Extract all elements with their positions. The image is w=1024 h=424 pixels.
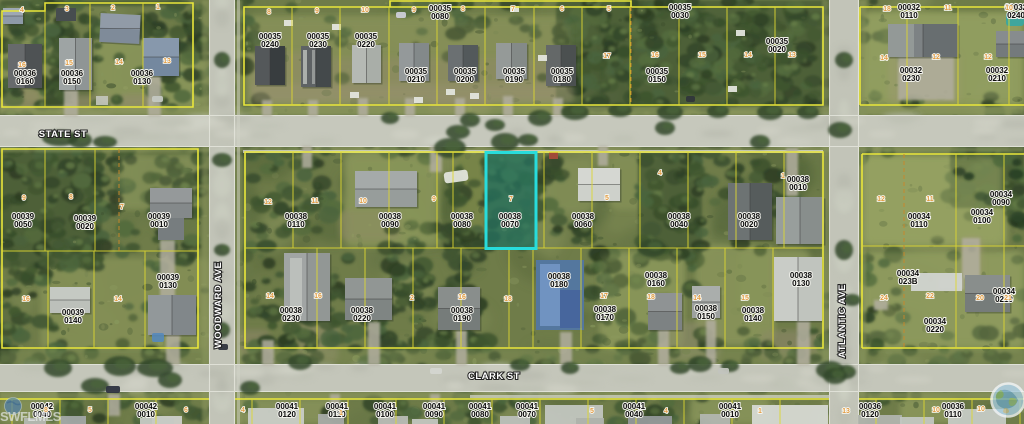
svg-text:000420010: 000420010 [135,402,158,419]
svg-text:000380230: 000380230 [280,306,303,323]
svg-text:000320230: 000320230 [900,66,923,83]
svg-text:9: 9 [432,196,436,203]
svg-text:000360160: 000360160 [14,69,37,86]
svg-text:18: 18 [504,296,512,303]
svg-text:16: 16 [22,296,30,303]
svg-text:000380130: 000380130 [790,271,813,288]
svg-text:000350190: 000350190 [503,67,526,84]
svg-text:000380160: 000380160 [645,271,668,288]
svg-text:000340110: 000340110 [908,212,931,229]
svg-text:12: 12 [984,54,992,61]
svg-text:13: 13 [163,58,171,65]
svg-text:000410070: 000410070 [516,402,539,419]
svg-text:000380140: 000380140 [742,306,765,323]
svg-text:000410080: 000410080 [469,402,492,419]
svg-text:22: 22 [926,293,934,300]
svg-text:15: 15 [698,52,706,59]
svg-text:000380080: 000380080 [451,212,474,229]
svg-text:10: 10 [359,198,367,205]
svg-text:14: 14 [115,59,123,66]
svg-text:000380020: 000380020 [738,212,761,229]
svg-text:000380090: 000380090 [379,212,402,229]
svg-text:6: 6 [184,407,188,414]
svg-text:14: 14 [693,295,701,302]
svg-text:9: 9 [412,7,416,14]
svg-text:7: 7 [511,6,515,13]
svg-text:00034023B: 00034023B [897,269,920,286]
svg-text:000340090: 000340090 [990,190,1013,207]
svg-text:11: 11 [944,5,952,12]
svg-text:000380110: 000380110 [285,212,308,229]
svg-text:5: 5 [605,195,609,202]
svg-text:14: 14 [880,55,888,62]
svg-text:000320210: 000320210 [986,66,1009,83]
svg-text:9: 9 [315,8,319,15]
svg-text:000350210: 000350210 [405,67,428,84]
svg-text:000350220: 000350220 [355,32,378,49]
svg-text:10: 10 [361,7,369,14]
svg-text:16: 16 [458,294,466,301]
svg-text:000320110: 000320110 [898,3,921,20]
svg-text:WOODWARD AVE: WOODWARD AVE [213,262,224,349]
svg-text:CLARK ST: CLARK ST [468,371,520,382]
svg-text:000350230: 000350230 [307,32,330,49]
svg-text:15: 15 [65,60,73,67]
svg-text:8: 8 [69,194,73,201]
svg-text:000350020: 000350020 [766,37,789,54]
svg-text:24: 24 [880,295,888,302]
svg-text:16: 16 [18,62,26,69]
svg-text:000410120: 000410120 [276,402,299,419]
svg-text:000380170: 000380170 [594,305,617,322]
svg-text:2: 2 [111,5,115,12]
svg-text:3: 3 [65,6,69,13]
svg-text:000360130: 000360130 [131,69,154,86]
svg-text:14: 14 [266,293,274,300]
svg-text:5: 5 [88,407,92,414]
svg-text:13: 13 [842,408,850,415]
svg-text:000390020: 000390020 [74,214,97,231]
svg-text:000380070: 000380070 [499,212,522,229]
svg-text:000380060: 000380060 [572,212,595,229]
svg-text:000360150: 000360150 [61,69,84,86]
svg-text:STATE ST: STATE ST [39,129,88,140]
svg-text:000390010: 000390010 [148,212,171,229]
svg-text:000360110: 000360110 [942,402,965,419]
svg-text:000380190: 000380190 [451,306,474,323]
svg-text:000340100: 000340100 [971,208,994,225]
svg-text:1: 1 [339,410,343,417]
svg-text:10: 10 [932,407,940,414]
svg-text:10: 10 [1005,5,1013,12]
svg-text:7: 7 [120,204,124,211]
svg-text:000380040: 000380040 [668,212,691,229]
svg-text:17: 17 [603,53,611,60]
svg-text:4: 4 [658,170,662,177]
svg-text:8: 8 [461,6,465,13]
svg-text:000380010: 000380010 [787,175,810,192]
svg-text:4: 4 [664,408,668,415]
svg-text:11: 11 [311,198,319,205]
svg-text:000410100: 000410100 [374,402,397,419]
svg-text:000350180: 000350180 [551,67,574,84]
svg-text:4: 4 [20,7,24,14]
svg-text:11: 11 [926,196,934,203]
svg-text:16: 16 [651,52,659,59]
svg-text:18: 18 [647,294,655,301]
svg-text:000380150: 000380150 [695,304,718,321]
svg-text:21: 21 [1004,295,1012,302]
svg-text:000390050: 000390050 [12,212,35,229]
svg-text:12: 12 [264,199,272,206]
svg-text:12: 12 [932,54,940,61]
svg-text:ATLANTIC AVE: ATLANTIC AVE [837,284,848,358]
svg-text:1: 1 [156,4,160,11]
svg-text:1: 1 [758,408,762,415]
svg-text:10: 10 [977,406,985,413]
svg-text:000350240: 000350240 [259,32,282,49]
svg-text:000350030: 000350030 [669,3,692,20]
svg-text:000360120: 000360120 [859,402,882,419]
svg-text:000390140: 000390140 [62,308,85,325]
svg-text:18: 18 [883,6,891,13]
svg-text:000350150: 000350150 [646,67,669,84]
svg-text:17: 17 [600,293,608,300]
svg-text:000380180: 000380180 [548,272,571,289]
svg-text:000410110: 000410110 [326,402,349,419]
svg-text:6: 6 [560,6,564,13]
svg-text:4: 4 [241,407,245,414]
svg-text:000410010: 000410010 [719,402,742,419]
svg-text:14: 14 [744,52,752,59]
svg-text:000350200: 000350200 [454,67,477,84]
svg-text:13: 13 [788,52,796,59]
svg-text:000380220: 000380220 [351,306,374,323]
svg-text:5: 5 [590,408,594,415]
svg-text:000410090: 000410090 [423,402,446,419]
svg-text:000340220: 000340220 [924,317,947,334]
svg-text:000410040: 000410040 [623,402,646,419]
svg-text:000390130: 000390130 [157,273,180,290]
svg-text:7: 7 [509,196,513,203]
svg-text:20: 20 [976,295,984,302]
svg-text:14: 14 [114,296,122,303]
svg-text:5: 5 [607,6,611,13]
svg-text:SWFLMLS: SWFLMLS [0,409,62,424]
svg-text:12: 12 [877,196,885,203]
svg-text:1: 1 [781,173,785,180]
svg-text:15: 15 [741,295,749,302]
svg-text:9: 9 [22,195,26,202]
svg-text:2: 2 [410,295,414,302]
svg-text:000350080: 000350080 [429,4,452,21]
svg-text:16: 16 [314,293,322,300]
svg-text:8: 8 [267,9,271,16]
